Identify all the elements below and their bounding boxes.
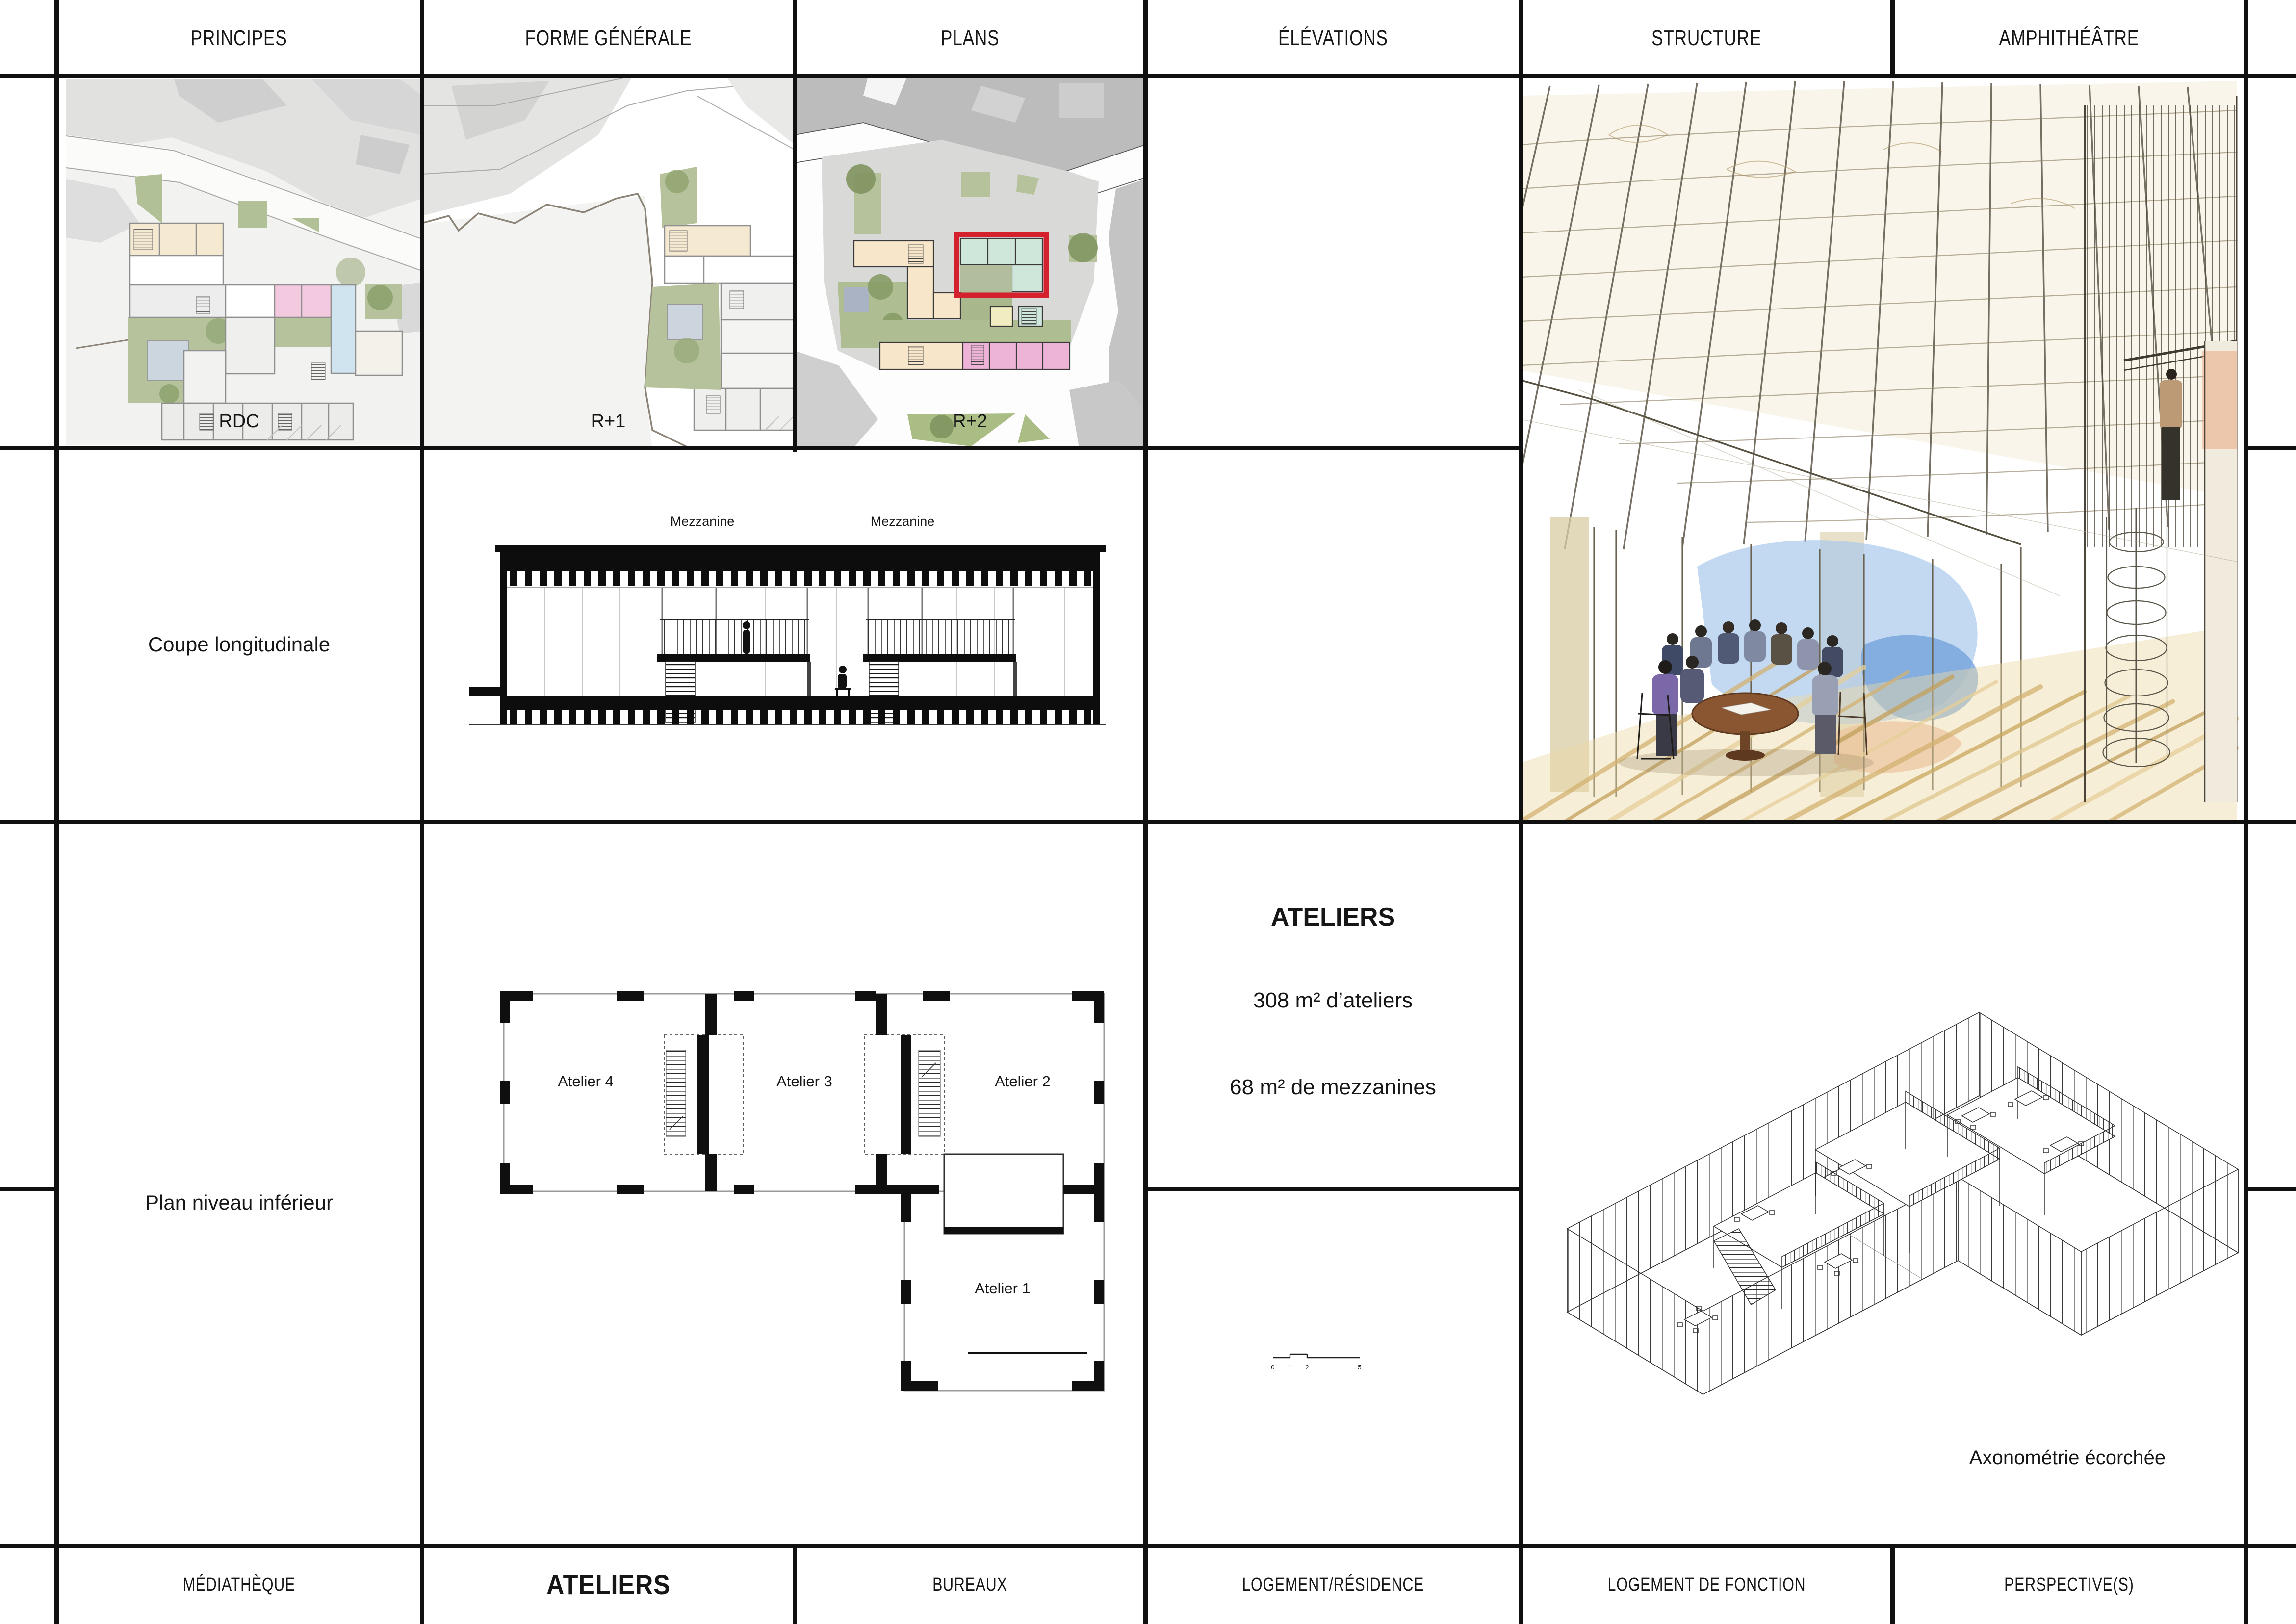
grid-v-col4 [1519,0,1523,1624]
rdc-site-plan [56,76,422,448]
section-entry-step [469,687,501,696]
footer-perspectives: PERSPECTIVE(S) [1892,1546,2245,1624]
scale-tick-0: 0 [1268,1364,1278,1371]
r2-courtyard [960,265,1012,292]
room-atelier-1: Atelier 1 [929,1280,1076,1297]
scale-tick-1: 1 [1285,1364,1295,1371]
grid-h-row2 [0,820,2296,824]
grid-h-row3-elevations [1143,1187,1521,1191]
scale-tick-2: 2 [1302,1364,1312,1371]
rdc-pond [147,341,189,380]
ateliers-area-line1: 308 m² d’ateliers [1145,988,1521,1013]
section-floor-joists [501,710,1100,725]
plan-vestibule [944,1154,1063,1234]
footer-perspectives-label: PERSPECTIVE(S) [2004,1546,2134,1624]
r1-site-plan [422,76,795,448]
plan-core-a [664,1035,744,1154]
section-roof-band [501,548,1100,571]
header-plans: PLANS [795,0,1145,76]
grid-v-col3 [1143,0,1148,1624]
presentation-board: PRINCIPES FORME GÉNÉRALE PLANS ÉLÉVATION… [0,0,2296,1624]
plan-inferieur-caption: Plan niveau inférieur [56,1191,422,1214]
header-amphitheatre-label: AMPHITHÉÂTRE [1999,0,2139,76]
header-structure: STRUCTURE [1521,0,1892,76]
header-elevations: ÉLÉVATIONS [1145,0,1521,76]
room-atelier-4: Atelier 4 [512,1073,659,1090]
r2-site-plan [795,76,1145,448]
grid-v-col5-bottom [1890,1546,1895,1624]
footer-ateliers: ATELIERS [422,1546,795,1624]
footer-mediatheque: MÉDIATHÈQUE [56,1546,422,1624]
footer-ateliers-label: ATELIERS [546,1546,671,1624]
grid-v-col1 [420,0,424,1624]
grid-v-left-margin [54,0,59,1624]
grid-v-col2-top [793,0,797,452]
longitudinal-section [422,448,1145,822]
grid-h-header [0,74,2296,78]
plan-core-b [864,1035,944,1154]
atelier-floor-plan [422,822,1145,1546]
header-forme-generale-label: FORME GÉNÉRALE [525,0,692,76]
header-amphitheatre: AMPHITHÉÂTRE [1892,0,2245,76]
footer-bureaux-label: BUREAUX [932,1546,1007,1624]
header-principes: PRINCIPES [56,0,422,76]
header-elevations-label: ÉLÉVATIONS [1278,0,1388,76]
r1-caption: R+1 [422,411,795,432]
grid-h-footer [0,1544,2296,1548]
header-structure-label: STRUCTURE [1651,0,1761,76]
section-floor-band [501,696,1100,710]
section-roof-joists [501,571,1100,586]
grid-h-row3-margin-left [0,1187,56,1191]
footer-logement-residence: LOGEMENT/RÉSIDENCE [1145,1546,1521,1624]
mezzanine-caption-right: Mezzanine [829,514,976,529]
grid-v-col2-bottom [793,1546,797,1624]
footer-logement-fonction: LOGEMENT DE FONCTION [1521,1546,1892,1624]
ateliers-title: ATELIERS [1145,902,1521,932]
grid-h-row3-margin-right [2244,1187,2296,1191]
header-forme-generale: FORME GÉNÉRALE [422,0,795,76]
scale-tick-5: 5 [1355,1364,1365,1371]
axonometric-drawing [1521,822,2245,1546]
rdc-caption: RDC [56,411,422,432]
balcony-person [2160,369,2182,500]
footer-bureaux: BUREAUX [795,1546,1145,1624]
r1-pond [667,304,702,339]
scale-bar [1268,1349,1366,1366]
r2-caption: R+2 [795,411,1145,432]
section-standing-figure [743,621,750,654]
header-plans-label: PLANS [941,0,999,76]
atelier-interior-sketch [1521,76,2245,822]
grid-v-col5-top [1890,0,1895,78]
grid-h-row1-left [0,446,1521,450]
section-sitting-figure [835,666,851,696]
footer-mediatheque-label: MÉDIATHÈQUE [183,1546,296,1624]
axonometric-caption: Axonométrie écorchée [1920,1447,2215,1469]
mezzanine-caption-left: Mezzanine [629,514,776,529]
header-principes-label: PRINCIPES [191,0,287,76]
grid-v-right-margin [2244,0,2248,1624]
footer-logement-residence-label: LOGEMENT/RÉSIDENCE [1242,1546,1424,1624]
room-atelier-2: Atelier 2 [949,1073,1096,1090]
footer-logement-fonction-label: LOGEMENT DE FONCTION [1607,1546,1806,1624]
grid-h-row1-right [2244,446,2296,450]
room-atelier-3: Atelier 3 [731,1073,878,1090]
ateliers-area-line2: 68 m² de mezzanines [1145,1075,1521,1100]
coupe-caption: Coupe longitudinale [56,633,422,656]
